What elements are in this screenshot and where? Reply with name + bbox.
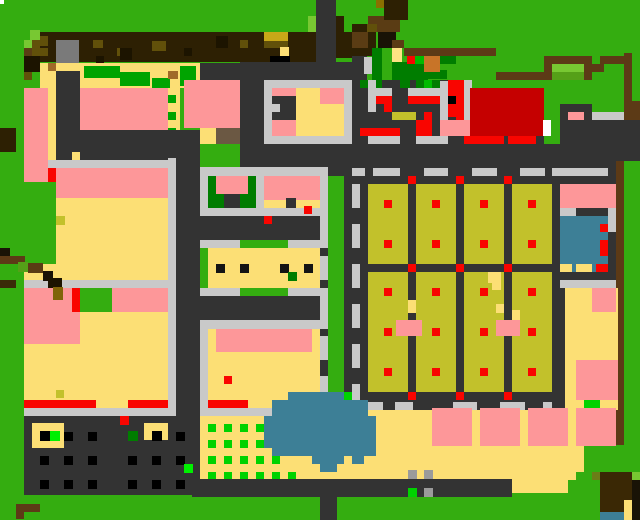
west-vertical-road [176, 136, 200, 416]
bush [18, 262, 28, 272]
garden-dot [224, 440, 232, 448]
fence [544, 56, 592, 64]
pond [320, 464, 337, 472]
red-marker [384, 240, 392, 248]
dirt-spot [48, 63, 56, 71]
building-pink-north-b [184, 80, 240, 128]
shrine-fence [404, 48, 496, 56]
crop-field [56, 216, 65, 225]
hedge [152, 78, 170, 88]
red-marker [432, 200, 440, 208]
tree-canopy [336, 16, 344, 32]
car-black [64, 480, 73, 489]
car-black [40, 431, 50, 441]
pink-roof [216, 329, 312, 352]
red-marker [528, 368, 536, 376]
sidewalk [320, 336, 328, 360]
car-black [64, 432, 73, 441]
dark-shrub [416, 80, 424, 88]
red-marker [480, 240, 488, 248]
dark-shrub [360, 80, 368, 88]
red-marker [528, 240, 536, 248]
bright-shrub [415, 56, 424, 64]
row-house [432, 408, 472, 446]
plaza-ground [320, 104, 344, 136]
sidewalk [24, 408, 176, 416]
sidewalk [288, 240, 328, 248]
dark-shrub [288, 272, 297, 281]
pond [280, 448, 376, 456]
car-black [40, 480, 49, 489]
car-black [40, 456, 49, 465]
row-house [576, 408, 616, 446]
plaza-ground [80, 312, 168, 344]
red-marker [416, 128, 432, 136]
tree-canopy [384, 0, 408, 20]
sidewalk [352, 344, 360, 368]
white-mark [543, 120, 551, 136]
paddy-field [368, 184, 408, 264]
plaza-ground [624, 500, 632, 520]
hedge [84, 66, 120, 78]
sidewalk [408, 88, 442, 96]
pond [312, 456, 344, 464]
sidewalk [320, 176, 328, 200]
garden-dot [240, 440, 248, 448]
sidewalk [376, 88, 392, 96]
red-marker [464, 136, 504, 144]
sidewalk [320, 256, 328, 280]
red-marker [456, 176, 464, 184]
pink-roof [592, 288, 616, 312]
hedge [168, 95, 176, 103]
plaza-ground [408, 300, 416, 313]
tree-canopy [0, 128, 16, 152]
plaza-ground [200, 128, 216, 144]
sidewalk [560, 280, 616, 288]
sidewalk [200, 288, 240, 296]
plaza-ground [72, 152, 80, 160]
paver [424, 488, 433, 497]
building-pink-north-a [80, 88, 168, 130]
road [286, 198, 296, 208]
fence [16, 504, 40, 512]
red-marker [600, 224, 608, 232]
south-road [192, 479, 512, 497]
car-black [152, 480, 161, 489]
red-marker [407, 56, 415, 64]
paddy-field [464, 184, 504, 264]
crop-field [392, 112, 416, 120]
car-black [64, 456, 73, 465]
plaza-ground [488, 272, 501, 283]
fence [544, 64, 552, 80]
hedge [168, 112, 176, 120]
red-marker [408, 176, 416, 184]
fence [624, 101, 640, 111]
sidewalk [320, 296, 328, 320]
branch [53, 287, 63, 300]
red-marker [416, 120, 424, 128]
fence [600, 56, 624, 64]
red-marker [480, 368, 488, 376]
road [552, 288, 566, 410]
south-road-stub [320, 479, 337, 520]
red-marker [384, 368, 392, 376]
sidewalk [200, 320, 208, 413]
red-marker [480, 328, 488, 336]
sidewalk [424, 168, 448, 176]
light-bush [308, 16, 316, 32]
pink-roof [272, 120, 296, 136]
red-marker [120, 416, 129, 425]
torii-block [424, 56, 440, 72]
town-map [0, 0, 640, 520]
garden-dot [208, 440, 216, 448]
pink-roof [264, 176, 320, 200]
sidewalk [320, 216, 328, 240]
sidewalk [520, 168, 545, 176]
red-marker [376, 96, 392, 104]
paver [424, 470, 433, 479]
paver [408, 470, 417, 479]
red-marker [304, 206, 312, 214]
red-marker [48, 168, 56, 182]
pink-roof [216, 176, 248, 194]
light-bush [632, 472, 640, 480]
sidewalk [364, 57, 372, 74]
car-green [50, 431, 60, 441]
red-marker [480, 200, 488, 208]
garden-dot [208, 456, 216, 464]
road [344, 144, 560, 160]
dark-shrub [400, 79, 410, 88]
water [600, 512, 624, 520]
plaza-ground [296, 88, 320, 136]
red-marker [528, 328, 536, 336]
garden-dot [256, 424, 264, 432]
canopy-spot [24, 72, 32, 80]
building-pink-east [576, 360, 618, 400]
dark-shrub [392, 62, 428, 80]
red-marker [456, 392, 464, 400]
hedge [120, 72, 150, 86]
sidewalk [200, 408, 272, 416]
light-bush [24, 40, 32, 48]
red-marker [480, 288, 488, 296]
window-black [304, 264, 313, 273]
car-green [184, 464, 193, 473]
bright-shrub [424, 80, 432, 88]
canopy-shadow [24, 56, 40, 72]
white-mark [0, 0, 4, 4]
plaza-ground [512, 310, 520, 320]
red-marker [596, 264, 608, 272]
red-marker [128, 400, 168, 408]
sidewalk [24, 280, 168, 288]
sidewalk [552, 168, 608, 176]
dirt-spot [168, 71, 178, 79]
plaza-ground [560, 264, 572, 272]
red-marker [432, 288, 440, 296]
plaza-ground [96, 400, 128, 408]
stone-entrance [56, 40, 79, 63]
window-black [240, 264, 249, 273]
tree-branch [392, 40, 404, 48]
road [200, 296, 328, 320]
dark-shrub [432, 80, 440, 88]
car-black [128, 480, 137, 489]
window-black [216, 264, 225, 273]
pink-roof [396, 320, 422, 336]
red-marker [508, 136, 536, 144]
sidewalk [373, 168, 400, 176]
car-black [128, 456, 137, 465]
pink-roof [320, 88, 344, 104]
sidewalk [48, 160, 176, 168]
tree-branch [352, 32, 368, 48]
car-black [152, 456, 161, 465]
car-black [176, 432, 185, 441]
red-marker [432, 240, 440, 248]
garden-dot [584, 400, 600, 408]
row-house [528, 408, 568, 446]
garden-dot [408, 488, 417, 497]
sidewalk [560, 208, 576, 216]
car-black [448, 96, 456, 104]
red-marker [408, 392, 416, 400]
red-marker [384, 328, 392, 336]
fence-shadow [0, 280, 16, 288]
crate [216, 128, 240, 144]
sidewalk [352, 184, 360, 208]
garden-dot [272, 456, 280, 464]
row-house [480, 408, 520, 446]
plaza-ground [576, 264, 592, 272]
garden-dot [240, 424, 248, 432]
plaza-ground [48, 88, 56, 160]
sidewalk [472, 168, 497, 176]
sidewalk [352, 304, 360, 328]
fence [592, 64, 604, 72]
plaza-ground [24, 344, 168, 400]
fence [496, 72, 544, 80]
building-pink-west [24, 88, 48, 182]
dark-trunk [632, 480, 640, 520]
red-marker [504, 176, 512, 184]
red-marker [408, 264, 416, 272]
canopy-spot [152, 41, 166, 51]
moss [592, 472, 600, 480]
pink-roof [568, 112, 584, 120]
tree-branch [28, 263, 43, 273]
canopy-spot [32, 48, 48, 56]
plaza-pink-band [56, 168, 168, 198]
red-marker [384, 200, 392, 208]
canopy-spot [240, 40, 248, 48]
pink-roof [112, 288, 168, 312]
canopy-spot [32, 40, 40, 48]
red-marker [24, 400, 96, 408]
sidewalk [368, 80, 376, 112]
red-marker [504, 392, 512, 400]
red-marker [384, 288, 392, 296]
canopy-shadow [216, 36, 228, 48]
red-marker [528, 288, 536, 296]
pond [272, 400, 368, 416]
car-black [152, 431, 162, 441]
plaza-ground [280, 47, 289, 56]
garden-dot [224, 456, 232, 464]
red-marker [264, 216, 272, 224]
canopy-spot [93, 40, 103, 48]
canopy-shadow [184, 48, 192, 56]
pond [272, 448, 280, 456]
pond [352, 456, 364, 464]
garden-dot [240, 456, 248, 464]
canopy-shadow [120, 48, 132, 60]
red-marker [408, 96, 440, 104]
plaza-border [168, 158, 176, 416]
canopy-spot [367, 24, 377, 32]
red-marker [528, 200, 536, 208]
sidewalk [288, 288, 328, 296]
sidewalk [608, 208, 616, 232]
car-black [88, 480, 97, 489]
pool-building [560, 184, 616, 208]
garden-dot [224, 424, 232, 432]
sidewalk [200, 240, 240, 248]
fence [584, 64, 592, 80]
sidewalk [592, 112, 624, 120]
plaza-ground [568, 446, 584, 472]
north-road-stub [316, 0, 336, 62]
red-marker [600, 240, 608, 256]
sidewalk [352, 168, 365, 176]
grass [24, 182, 56, 264]
dark-shrub [440, 56, 456, 64]
light-bush [30, 30, 40, 40]
red-marker [208, 400, 248, 408]
red-marker [456, 264, 464, 272]
west-plaza [56, 198, 168, 280]
car-black [176, 480, 185, 489]
car-black [88, 456, 97, 465]
sidewalk [200, 320, 328, 329]
fence [624, 111, 640, 120]
red-marker [432, 368, 440, 376]
tree-branch [24, 48, 32, 56]
bush [552, 72, 584, 80]
tree-top [376, 0, 384, 8]
sidewalk [272, 104, 280, 112]
paddy-field [416, 184, 456, 264]
crop-field [56, 390, 64, 398]
sidewalk [395, 402, 413, 410]
paddy-field [512, 184, 552, 264]
red-marker [224, 376, 232, 384]
red-marker [504, 264, 512, 272]
red-marker [384, 104, 392, 112]
plaza-ground [492, 283, 501, 290]
sidewalk [352, 224, 360, 248]
red-marker [72, 288, 80, 312]
light-bush [552, 64, 584, 72]
sidewalk [352, 264, 360, 288]
plaza-ground [512, 446, 568, 493]
red-marker [432, 328, 440, 336]
pink-roof [496, 320, 520, 336]
gold-roof [264, 32, 288, 41]
canopy-spot [40, 36, 48, 46]
fence [16, 512, 24, 519]
red-marker [360, 128, 400, 136]
pond [264, 416, 376, 448]
garden-dot [256, 440, 264, 448]
dark-shrub [128, 431, 138, 441]
plaza-ground [496, 304, 504, 313]
sidewalk [376, 136, 400, 144]
road [224, 194, 240, 208]
road [592, 120, 640, 161]
garden-dot [344, 392, 352, 400]
car-black [88, 432, 97, 441]
red-building [470, 88, 544, 136]
pink-roof [440, 120, 472, 136]
garden-dot [256, 456, 264, 464]
pink-roof [272, 88, 296, 96]
red-marker [424, 112, 432, 128]
garden-dot [208, 424, 216, 432]
